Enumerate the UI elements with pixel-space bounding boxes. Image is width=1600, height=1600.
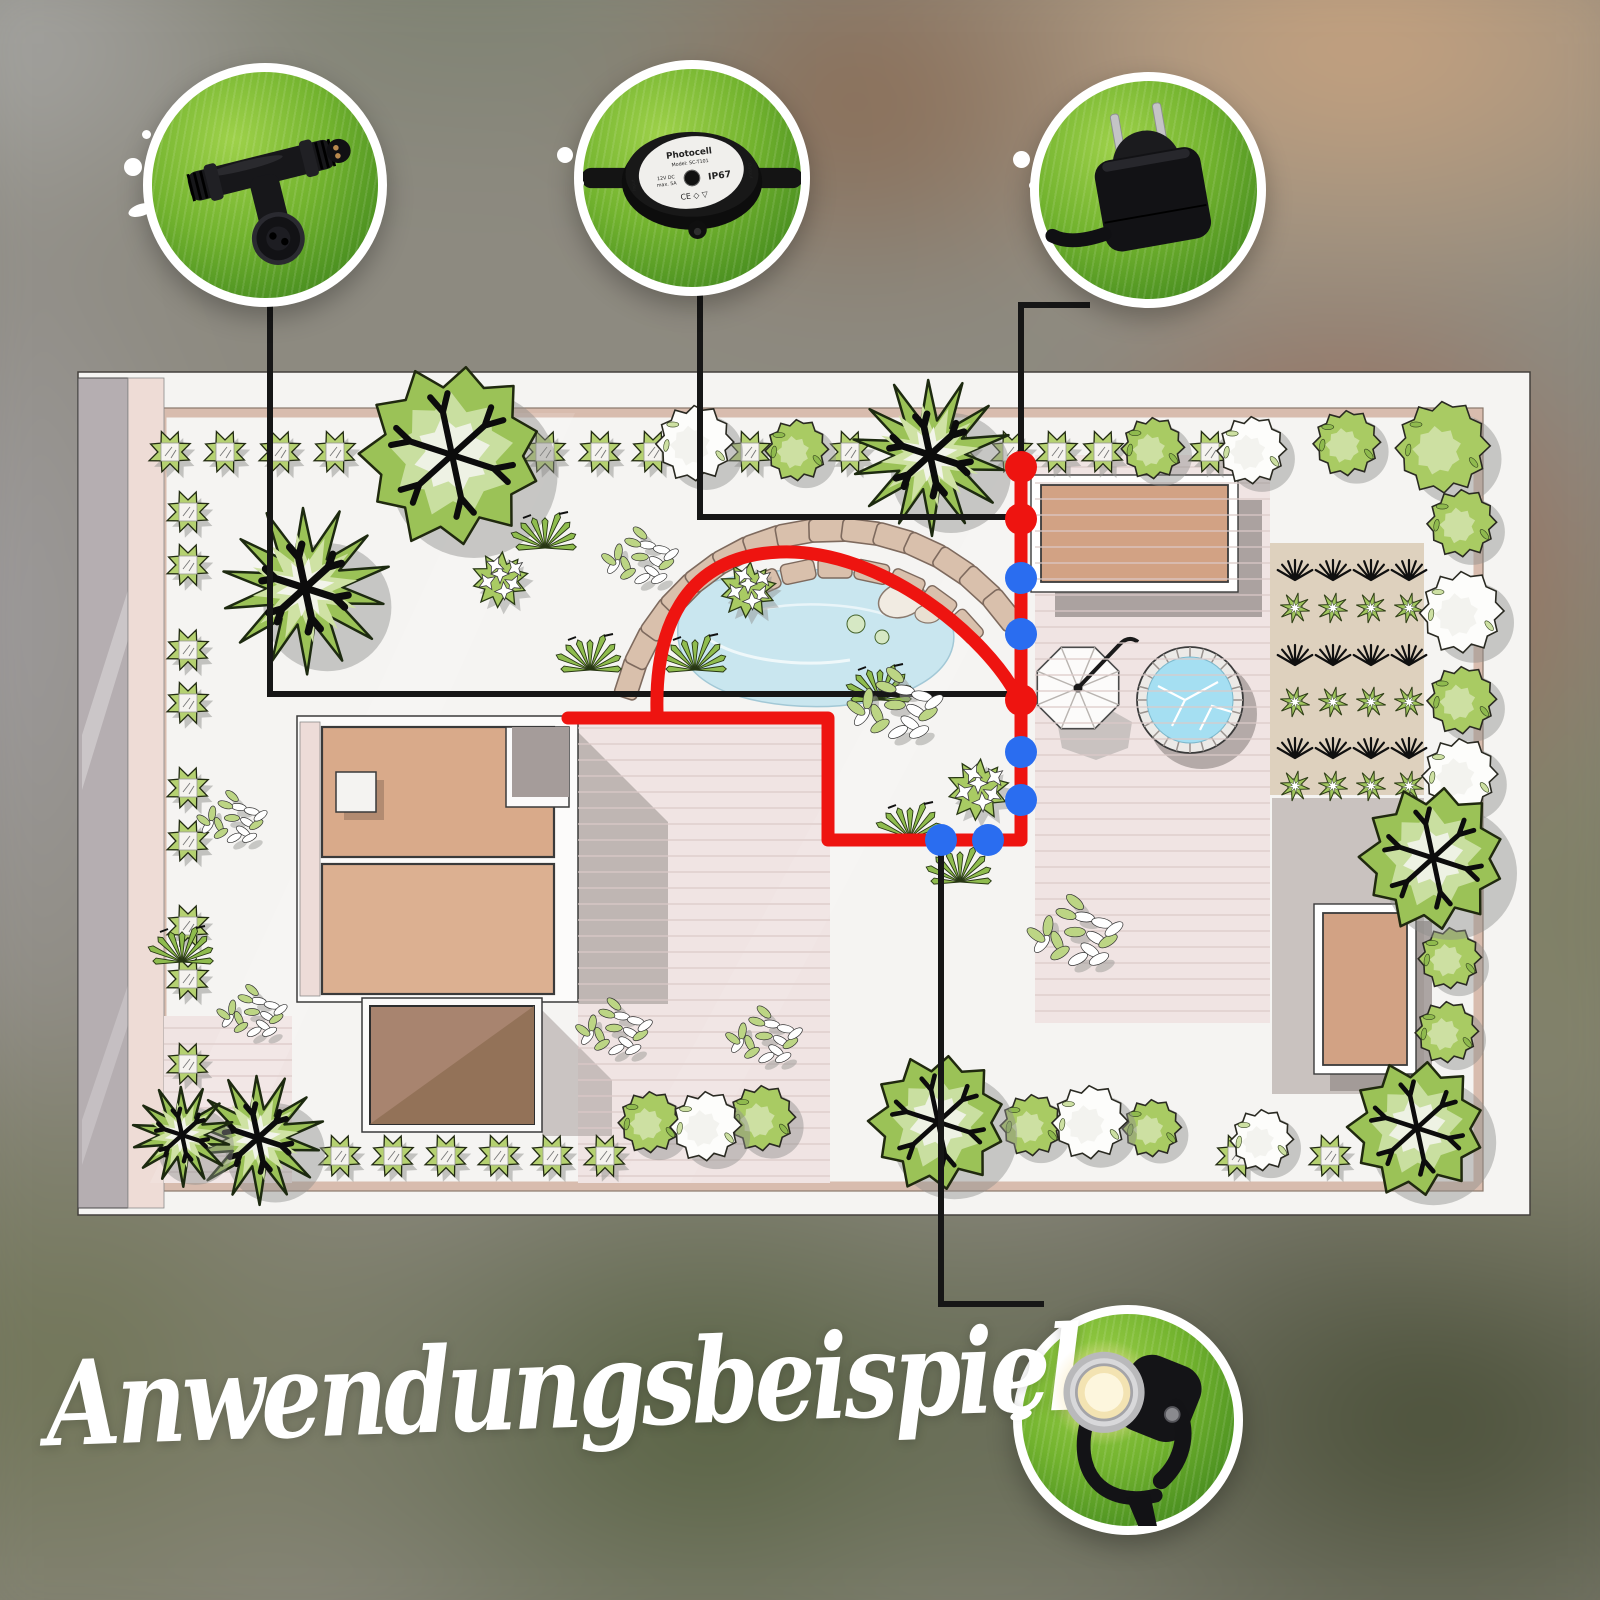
- paint-splatter: [124, 158, 142, 176]
- product-photo-spotlight: [1013, 1305, 1243, 1535]
- paint-splatter: [998, 1374, 1013, 1389]
- paint-splatter: [1029, 181, 1038, 190]
- spotlight-position-dot: [1005, 562, 1037, 594]
- pergola: [1314, 904, 1432, 1091]
- photocell-icon: Photocell Model: SC-T101 12V DC max. 5A …: [583, 69, 801, 287]
- paint-splatter: [575, 179, 584, 188]
- spotlight-position-dot: [925, 824, 957, 856]
- spotlight-position-dot: [1005, 736, 1037, 768]
- paint-splatter: [142, 130, 151, 139]
- connection-dot: [1005, 684, 1037, 716]
- connection-dot: [1005, 503, 1037, 535]
- paint-splatter: [1013, 151, 1030, 168]
- product-photo-power-plug: [1030, 72, 1266, 308]
- application-example-scene: Photocell Model: SC-T101 12V DC max. 5A …: [0, 0, 1600, 1600]
- product-photo-photocell: Photocell Model: SC-T101 12V DC max. 5A …: [574, 60, 810, 296]
- product-photo-t-connector: [143, 63, 387, 307]
- connection-dot: [1005, 451, 1037, 483]
- spotlight-position-dot: [972, 824, 1004, 856]
- spotlight-position-dot: [1005, 784, 1037, 816]
- plan-base: [78, 372, 1530, 1215]
- terrace: [1031, 475, 1262, 617]
- paint-splatter: [557, 147, 573, 163]
- t-connector-icon: [152, 72, 378, 298]
- spotlight-position-dot: [1005, 618, 1037, 650]
- spotlight-icon: [1022, 1314, 1234, 1526]
- power-plug-icon: [1039, 81, 1257, 299]
